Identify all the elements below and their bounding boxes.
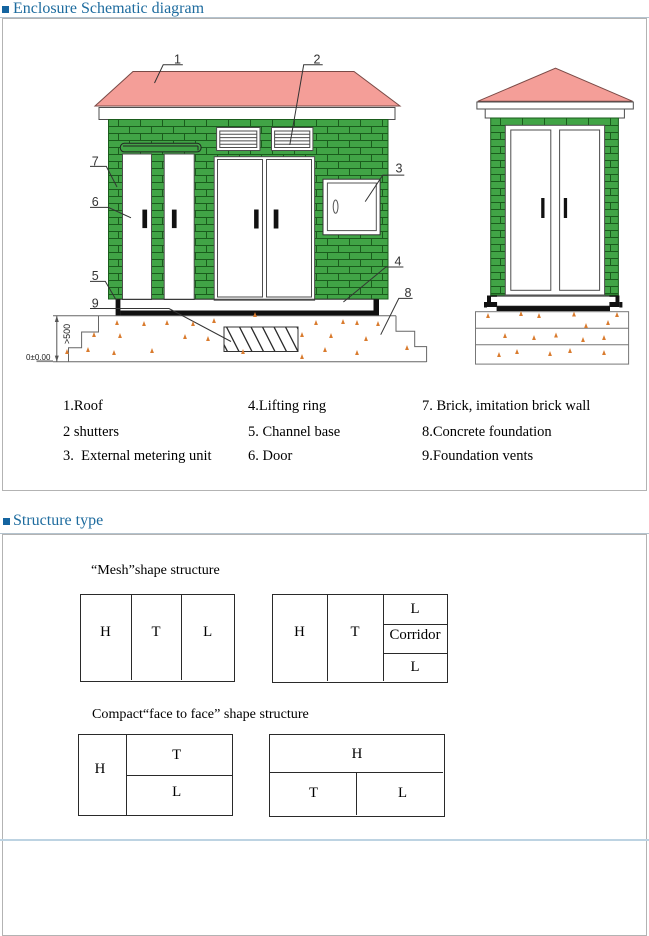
svg-text:3: 3 <box>396 162 403 176</box>
svg-text:4: 4 <box>395 255 402 269</box>
svg-text:>500: >500 <box>62 324 72 344</box>
svg-text:8: 8 <box>405 286 412 300</box>
